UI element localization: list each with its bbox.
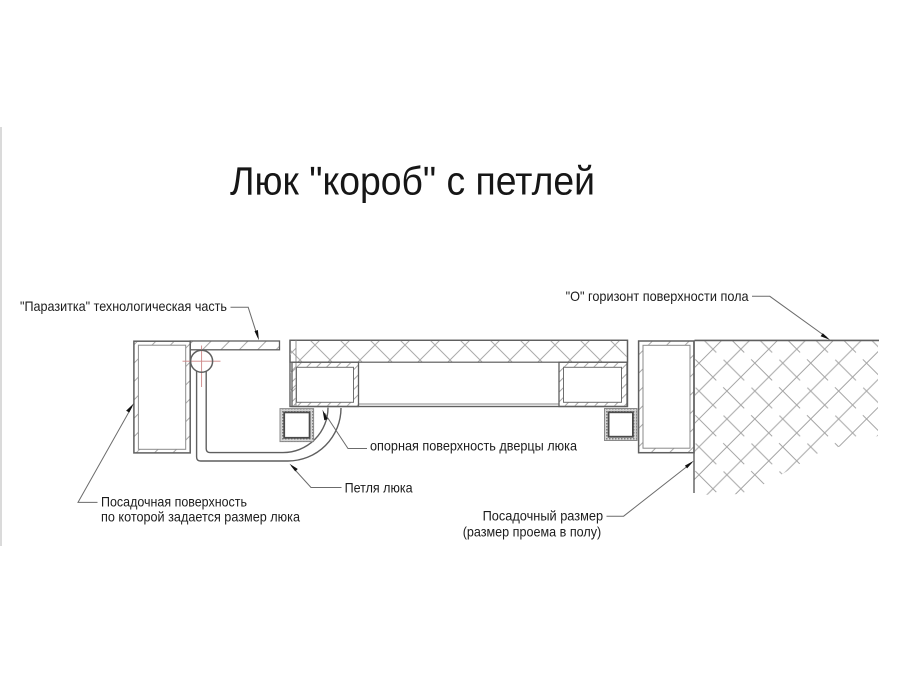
svg-text:Люк "короб" с петлей: Люк "короб" с петлей [230,160,595,204]
svg-text:Посадочная поверхность: Посадочная поверхность [101,494,247,510]
svg-text:"Паразитка" технологическая ча: "Паразитка" технологическая часть [20,298,227,314]
svg-text:Петля люка: Петля люка [345,480,413,496]
svg-text:(размер проема в полу): (размер проема в полу) [463,524,602,540]
svg-text:опорная поверхность дверцы люк: опорная поверхность дверцы люка [370,438,577,454]
svg-text:"О" горизонт поверхности пола: "О" горизонт поверхности пола [566,288,749,304]
svg-text:по которой задается размер люк: по которой задается размер люка [101,509,300,525]
svg-text:Посадочный размер: Посадочный размер [483,508,604,524]
